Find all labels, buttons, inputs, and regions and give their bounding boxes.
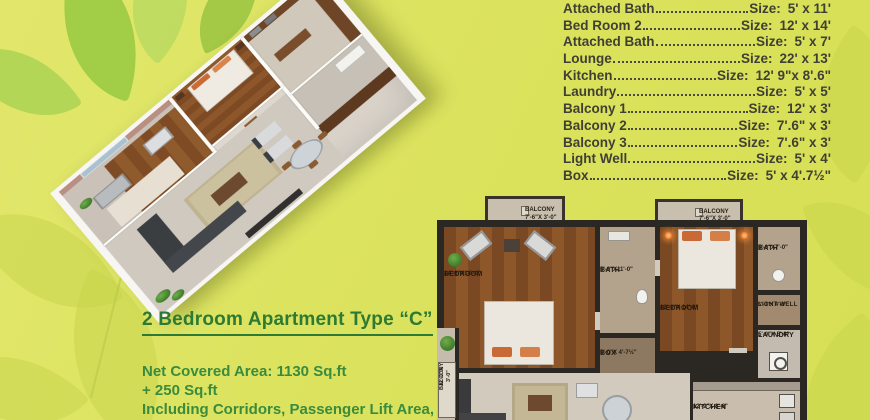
size-list-row: Attached BathSize:5' x 11': [563, 1, 831, 18]
room-label: Bed Room 2: [563, 18, 642, 35]
appliance: [779, 394, 795, 408]
door-gap: [655, 260, 660, 276]
door-gap: [729, 348, 747, 353]
room-label: Kitchen: [563, 68, 613, 85]
room-size-value: 12' 9"x 8'.6": [755, 68, 831, 85]
room-size-list: Attached BathSize:5' x 11' Bed Room 2Siz…: [563, 1, 831, 185]
room-label: Laundry: [563, 84, 616, 101]
room-size-value: 22' x 13': [780, 51, 831, 68]
dot-leader: [613, 61, 740, 63]
area-note: Including Corridors, Passenger Lift Area…: [142, 400, 492, 419]
coffee-table: [528, 395, 552, 411]
room-size-value: 5' x 4': [795, 151, 831, 168]
dot-leader: [628, 128, 738, 130]
plant: [440, 336, 455, 351]
size-prefix: Size:: [738, 135, 770, 152]
room-size-value: 7'.6" x 3': [777, 135, 831, 152]
vanity: [608, 231, 630, 241]
room-bath-middle: BATH 5'-0"X11'-0": [600, 227, 655, 333]
room-kitchen: KITCHEN 12'-9"X 8'-6": [693, 382, 800, 420]
size-list-row: BoxSize:5' x 4'.7½": [563, 168, 831, 185]
dining-table: [602, 395, 632, 420]
flyer-page: Attached BathSize:5' x 11' Bed Room 2Siz…: [0, 0, 870, 420]
room-label: Balcony 3: [563, 135, 627, 152]
room-label: Lounge: [563, 51, 612, 68]
room-size-value: 12' x 14': [780, 18, 831, 35]
size-list-row: KitchenSize:12' 9"x 8'.6": [563, 68, 831, 85]
size-prefix: Size:: [717, 68, 749, 85]
room-label: Attached Bath: [563, 34, 655, 51]
plant: [448, 253, 462, 267]
washbasin: [772, 269, 785, 282]
balcony-label: BALCONY 7'-6"X 3'-0": [695, 208, 703, 218]
size-list-row: Balcony 1Size:12' x 3': [563, 101, 831, 118]
room-label: Box: [563, 168, 589, 185]
table: [504, 239, 520, 252]
size-prefix: Size:: [741, 51, 773, 68]
wall-lamp-icon: [664, 231, 673, 240]
title-block: 2 Bedroom Apartment Type “C”: [142, 309, 433, 336]
room-bath-right: BATH 5'-0"X7'-0": [758, 227, 800, 290]
sofa: [524, 230, 557, 261]
pillow: [492, 347, 512, 357]
door-gap: [595, 312, 600, 330]
leaf-watermark-icon: [802, 179, 870, 319]
size-list-row: LaundrySize:5' x 5': [563, 84, 831, 101]
size-prefix: Size:: [749, 1, 781, 18]
size-prefix: Size:: [727, 168, 759, 185]
sofa: [460, 230, 493, 261]
size-prefix: Size:: [741, 18, 773, 35]
room-size-value: 5' x 11': [788, 1, 831, 18]
extra-area: + 250 Sq.ft: [142, 381, 492, 400]
area-details: Net Covered Area: 1130 Sq.ft + 250 Sq.ft…: [142, 362, 492, 419]
appliance: [779, 412, 795, 420]
floorplan-2d-body: BEDROOM 14'-6"X14'-0" BATH 5'-0"X11'-0" …: [437, 220, 807, 420]
room-laundry: LAUNDRY 5'-0"X 5'-0": [758, 330, 800, 378]
kitchen-counter: [693, 382, 800, 391]
size-prefix: Size:: [738, 118, 770, 135]
size-list-row: Bed Room 2Size:12' x 14': [563, 18, 831, 35]
net-covered-area: Net Covered Area: 1130 Sq.ft: [142, 362, 492, 381]
apartment-type-title: 2 Bedroom Apartment Type “C”: [142, 309, 433, 336]
room-bedroom-left: BEDROOM 14'-6"X14'-0": [444, 227, 595, 368]
room-label: Balcony 1: [563, 101, 627, 118]
dot-leader: [643, 28, 740, 30]
size-list-row: Light WellSize:5' x 4': [563, 151, 831, 168]
dot-leader: [628, 161, 755, 163]
floorplan-2d: BALCONY 7'-6"X 3'-0" BALCONY 7'-6"X 3'-0…: [437, 196, 807, 420]
toilet: [636, 289, 648, 304]
room-light-well: LIGHT WELL 5'-0"X 4'-0": [758, 295, 800, 325]
room-size-value: 7'.6" x 3': [777, 118, 831, 135]
size-prefix: Size:: [756, 84, 788, 101]
room-size-value: 12' x 3': [787, 101, 831, 118]
pillow: [682, 231, 702, 241]
room-bedroom-right: BEDROOM 12'-0"X 14'-0": [660, 227, 753, 351]
dot-leader: [628, 111, 748, 113]
size-list-row: Balcony 3Size:7'.6" x 3': [563, 135, 831, 152]
dot-leader: [617, 94, 755, 96]
size-prefix: Size:: [756, 151, 788, 168]
room-size-value: 5' x 5': [795, 84, 831, 101]
room-label: Attached Bath: [563, 1, 655, 18]
size-prefix: Size:: [756, 34, 788, 51]
size-list-row: Attached BathSize:5' x 7': [563, 34, 831, 51]
dot-leader: [656, 44, 756, 46]
room-size-value: 5' x 7': [795, 34, 831, 51]
pillow: [520, 347, 540, 357]
dot-leader: [656, 11, 749, 13]
size-list-row: LoungeSize:22' x 13': [563, 51, 831, 68]
pillow: [710, 231, 730, 241]
dot-leader: [628, 145, 738, 147]
size-prefix: Size:: [749, 101, 781, 118]
room-label: Balcony 2: [563, 118, 627, 135]
room-label: Light Well: [563, 151, 627, 168]
balcony-label: BALCONY 7'-6"X 3'-0": [521, 206, 529, 216]
sofa: [576, 383, 598, 398]
dot-leader: [590, 178, 727, 180]
washing-machine-icon: [769, 352, 788, 371]
room-size-value: 5' x 4'.7½": [766, 168, 831, 185]
wall-lamp-icon: [740, 231, 749, 240]
dot-leader: [614, 78, 716, 80]
size-list-row: Balcony 2Size:7'.6" x 3': [563, 118, 831, 135]
